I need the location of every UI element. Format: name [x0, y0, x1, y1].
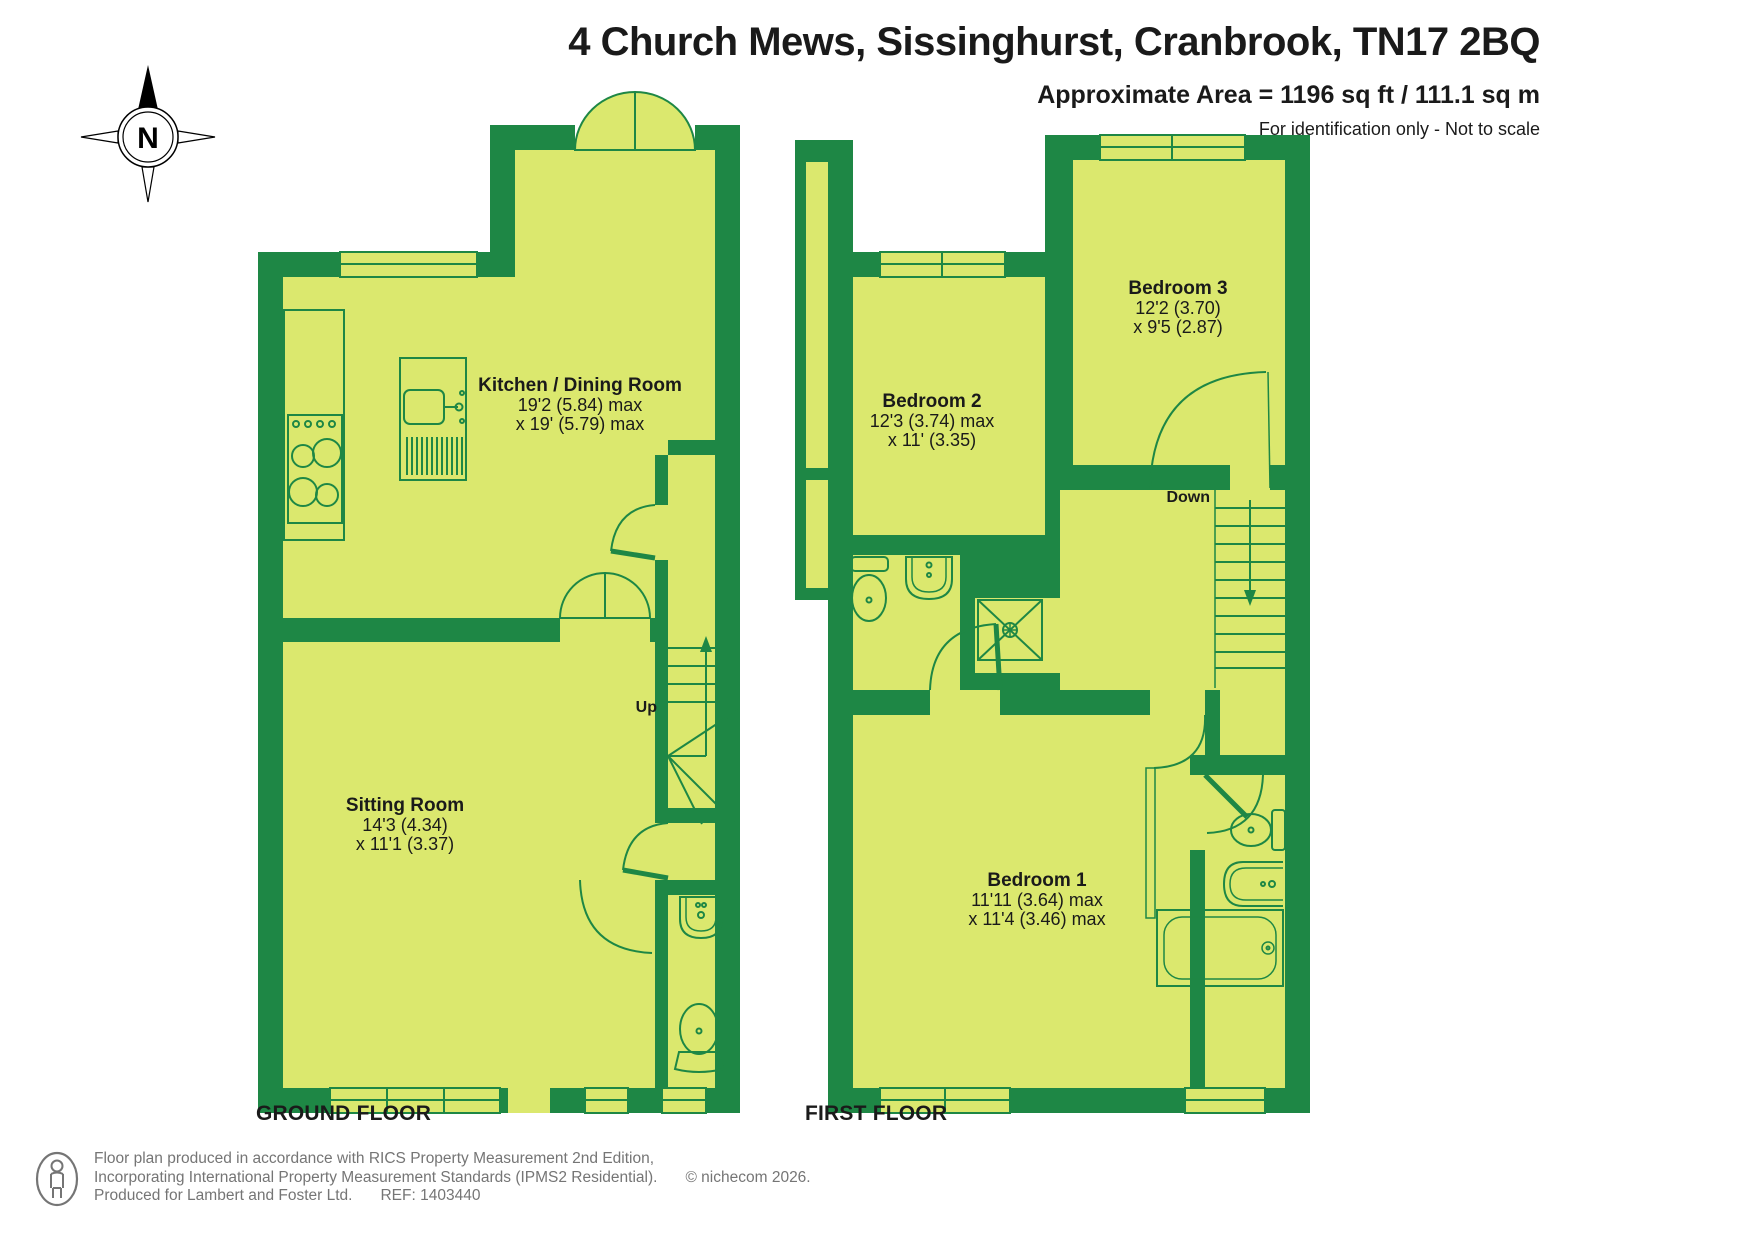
room-dim: x 11'1 (3.37) — [255, 835, 555, 855]
room-dim: 11'11 (3.64) max — [887, 891, 1187, 911]
room-name: Bedroom 1 — [887, 871, 1187, 891]
room-label-sitting: Sitting Room 14'3 (4.34) x 11'1 (3.37) — [255, 796, 555, 855]
person-icon — [34, 1150, 80, 1208]
ground-floor-plan — [258, 86, 740, 1113]
floorplan-page: 4 Church Mews, Sissinghurst, Cranbrook, … — [0, 0, 1755, 1241]
stairs-down-label: Down — [1128, 489, 1210, 507]
room-name: Kitchen / Dining Room — [430, 376, 730, 396]
room-dim: 12'2 (3.70) — [1028, 299, 1328, 319]
first-floor-title: FIRST FLOOR — [805, 1102, 947, 1126]
footer-copyright: © nichecom 2026. — [685, 1169, 810, 1186]
footer-line-2: Incorporating International Property Mea… — [94, 1169, 811, 1188]
room-label-bedroom1: Bedroom 1 11'11 (3.64) max x 11'4 (3.46)… — [887, 871, 1187, 930]
footer-text: Floor plan produced in accordance with R… — [94, 1150, 811, 1206]
footer-line-3: Produced for Lambert and Foster Ltd.REF:… — [94, 1187, 811, 1206]
compass-icon: N — [75, 62, 225, 212]
compass-north-label: N — [137, 122, 159, 155]
room-name: Bedroom 2 — [782, 392, 1082, 412]
page-title: 4 Church Mews, Sissinghurst, Cranbrook, … — [568, 20, 1540, 65]
footer-ref: REF: 1403440 — [380, 1187, 480, 1204]
room-dim: x 11'4 (3.46) max — [887, 910, 1187, 930]
approximate-area: Approximate Area = 1196 sq ft / 111.1 sq… — [568, 81, 1540, 110]
footer-line-1: Floor plan produced in accordance with R… — [94, 1150, 811, 1169]
footer-line-2-text: Incorporating International Property Mea… — [94, 1169, 657, 1186]
footer-produced-for: Produced for Lambert and Foster Ltd. — [94, 1187, 352, 1204]
footer: Floor plan produced in accordance with R… — [34, 1150, 811, 1208]
identification-note: For identification only - Not to scale — [568, 119, 1540, 140]
floorplan-graphics — [0, 0, 1755, 1241]
room-dim: x 19' (5.79) max — [430, 415, 730, 435]
room-label-bedroom3: Bedroom 3 12'2 (3.70) x 9'5 (2.87) — [1028, 279, 1328, 338]
room-label-kitchen: Kitchen / Dining Room 19'2 (5.84) max x … — [430, 376, 730, 435]
stairs-up-label: Up — [612, 699, 657, 717]
ground-floor-title: GROUND FLOOR — [256, 1102, 431, 1126]
room-name: Bedroom 3 — [1028, 279, 1328, 299]
room-dim: 14'3 (4.34) — [255, 816, 555, 836]
room-label-bedroom2: Bedroom 2 12'3 (3.74) max x 11' (3.35) — [782, 392, 1082, 451]
room-dim: x 11' (3.35) — [782, 431, 1082, 451]
room-dim: 19'2 (5.84) max — [430, 396, 730, 416]
room-name: Sitting Room — [255, 796, 555, 816]
room-dim: x 9'5 (2.87) — [1028, 318, 1328, 338]
header: 4 Church Mews, Sissinghurst, Cranbrook, … — [568, 20, 1540, 140]
room-dim: 12'3 (3.74) max — [782, 412, 1082, 432]
